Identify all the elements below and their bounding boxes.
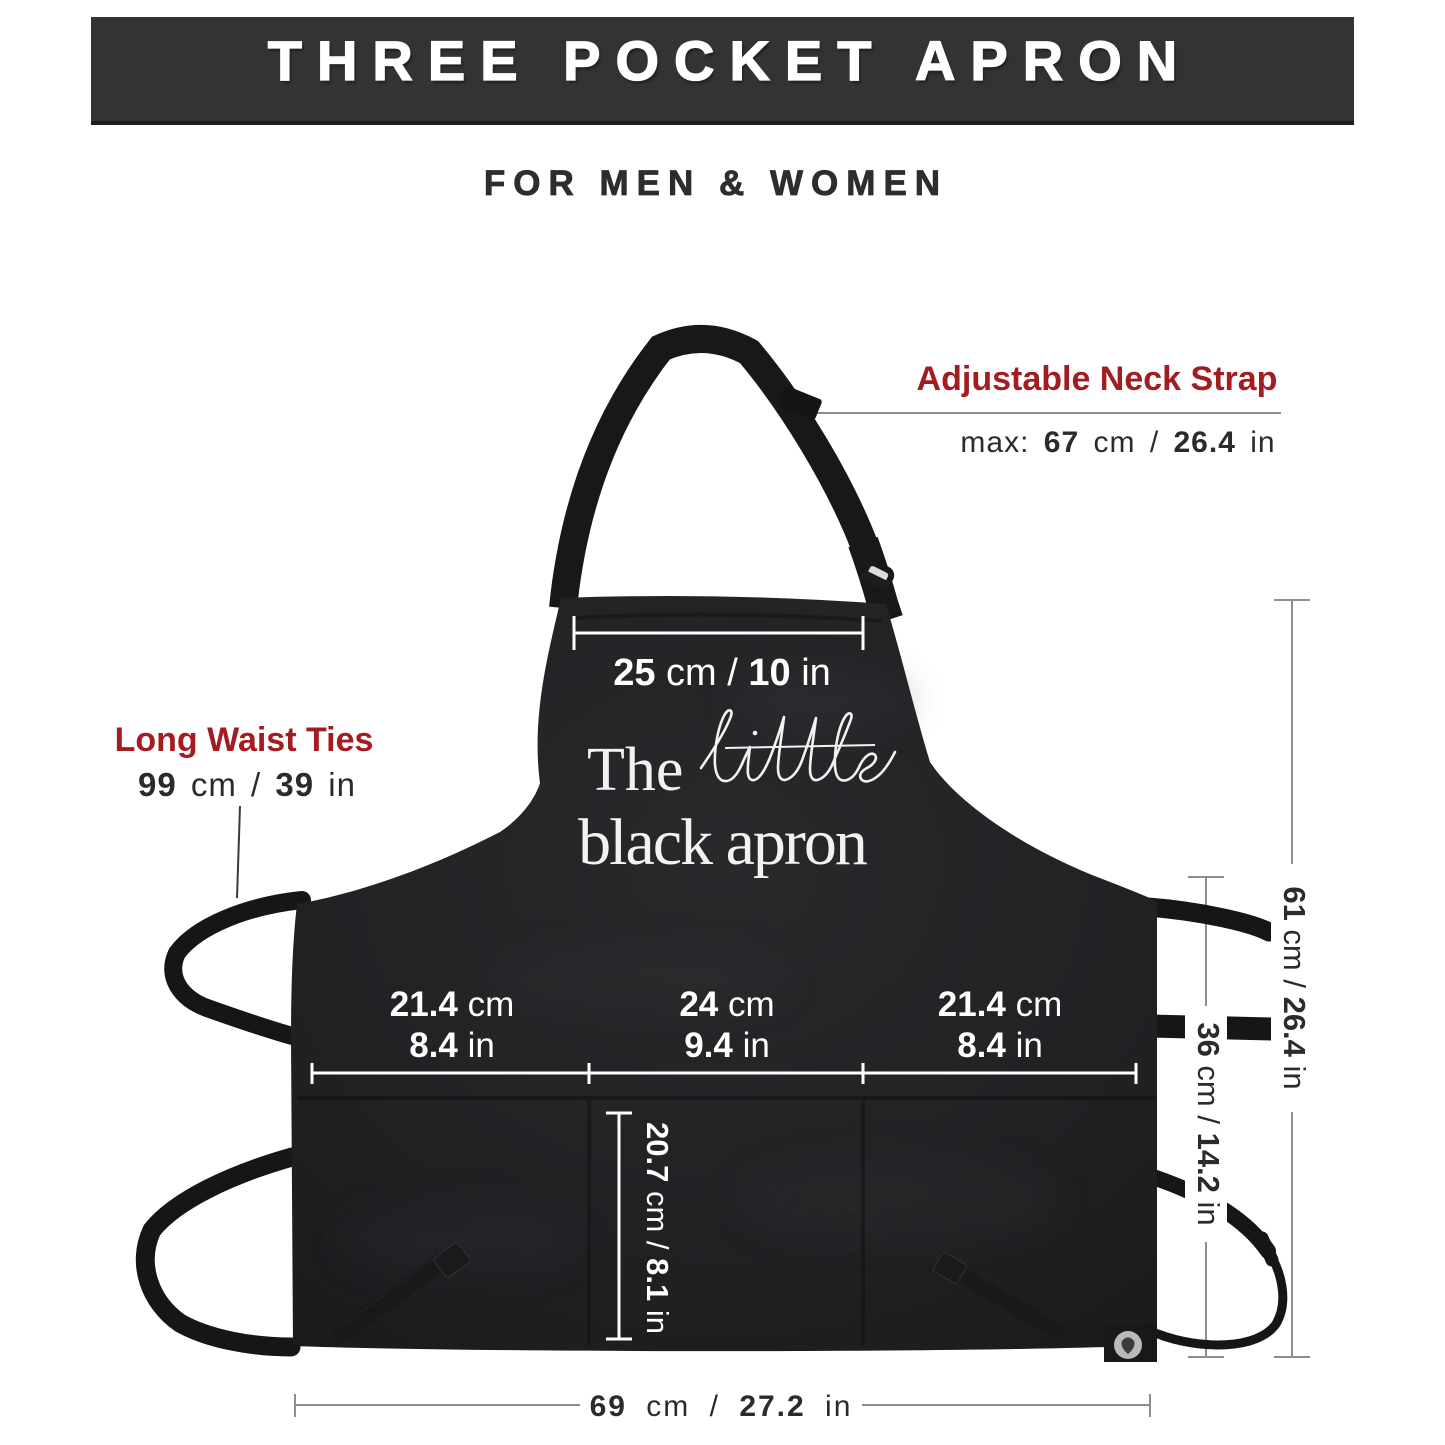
svg-text:8.4 in: 8.4 in [409,1026,495,1065]
svg-text:The: The [587,736,683,804]
svg-text:36 cm / 14.2 in: 36 cm / 14.2 in [1191,1022,1226,1225]
svg-text:20.7 cm / 8.1 in: 20.7 cm / 8.1 in [640,1122,675,1334]
svg-text:8.4 in: 8.4 in [957,1026,1043,1065]
svg-text:24 cm: 24 cm [679,985,774,1024]
svg-text:61 cm / 26.4 in: 61 cm / 26.4 in [1277,886,1312,1089]
svg-text:69 cm / 27.2 in: 69 cm / 27.2 in [590,1390,853,1423]
svg-text:21.4 cm: 21.4 cm [938,985,1063,1024]
svg-text:black apron: black apron [578,806,867,879]
svg-text:9.4 in: 9.4 in [684,1026,770,1065]
svg-text:21.4 cm: 21.4 cm [390,985,515,1024]
svg-text:25 cm / 10 in: 25 cm / 10 in [613,652,831,694]
